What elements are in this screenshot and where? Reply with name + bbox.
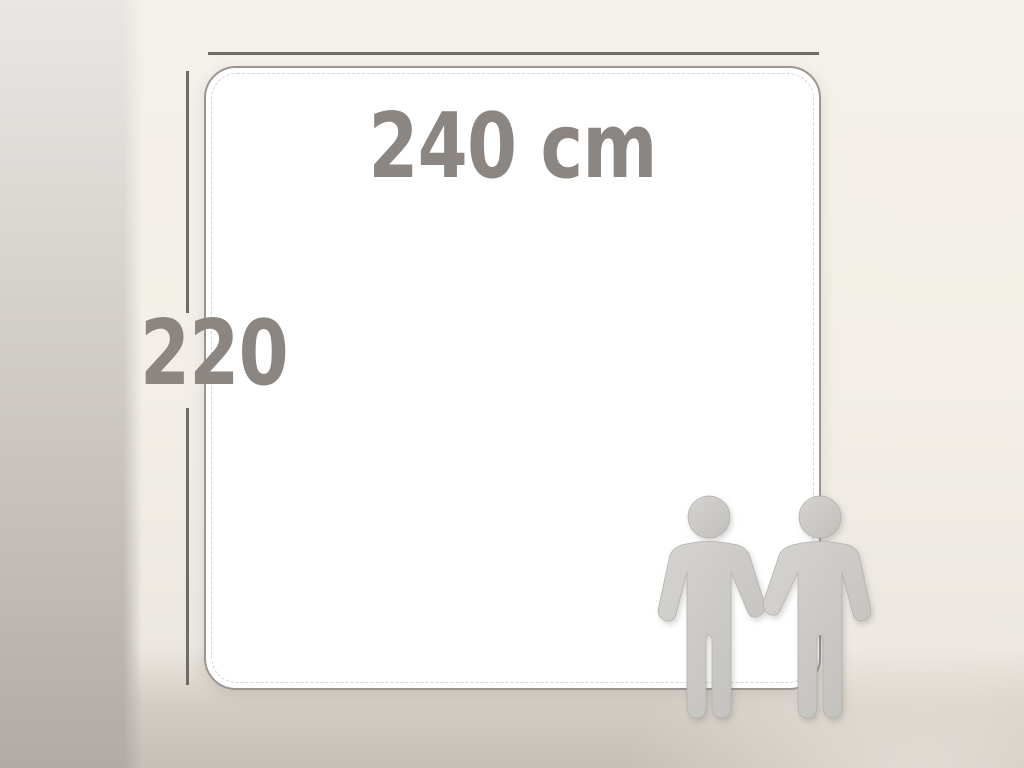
person-body (763, 542, 871, 719)
person-icon-right (763, 496, 871, 718)
person-head (799, 496, 841, 538)
width-dimension-line (208, 52, 819, 55)
scale-figures (646, 496, 874, 720)
person-head (688, 496, 730, 538)
height-dimension-line-upper (186, 71, 189, 313)
background-wall-shadow (0, 0, 142, 768)
height-label: 220 (140, 309, 288, 399)
product-size-illustration: 240 cm 220 (0, 0, 1024, 768)
width-label: 240 cm (267, 102, 757, 192)
height-dimension-line-lower (186, 408, 189, 685)
person-icon-left (658, 496, 765, 718)
person-body (658, 542, 765, 719)
